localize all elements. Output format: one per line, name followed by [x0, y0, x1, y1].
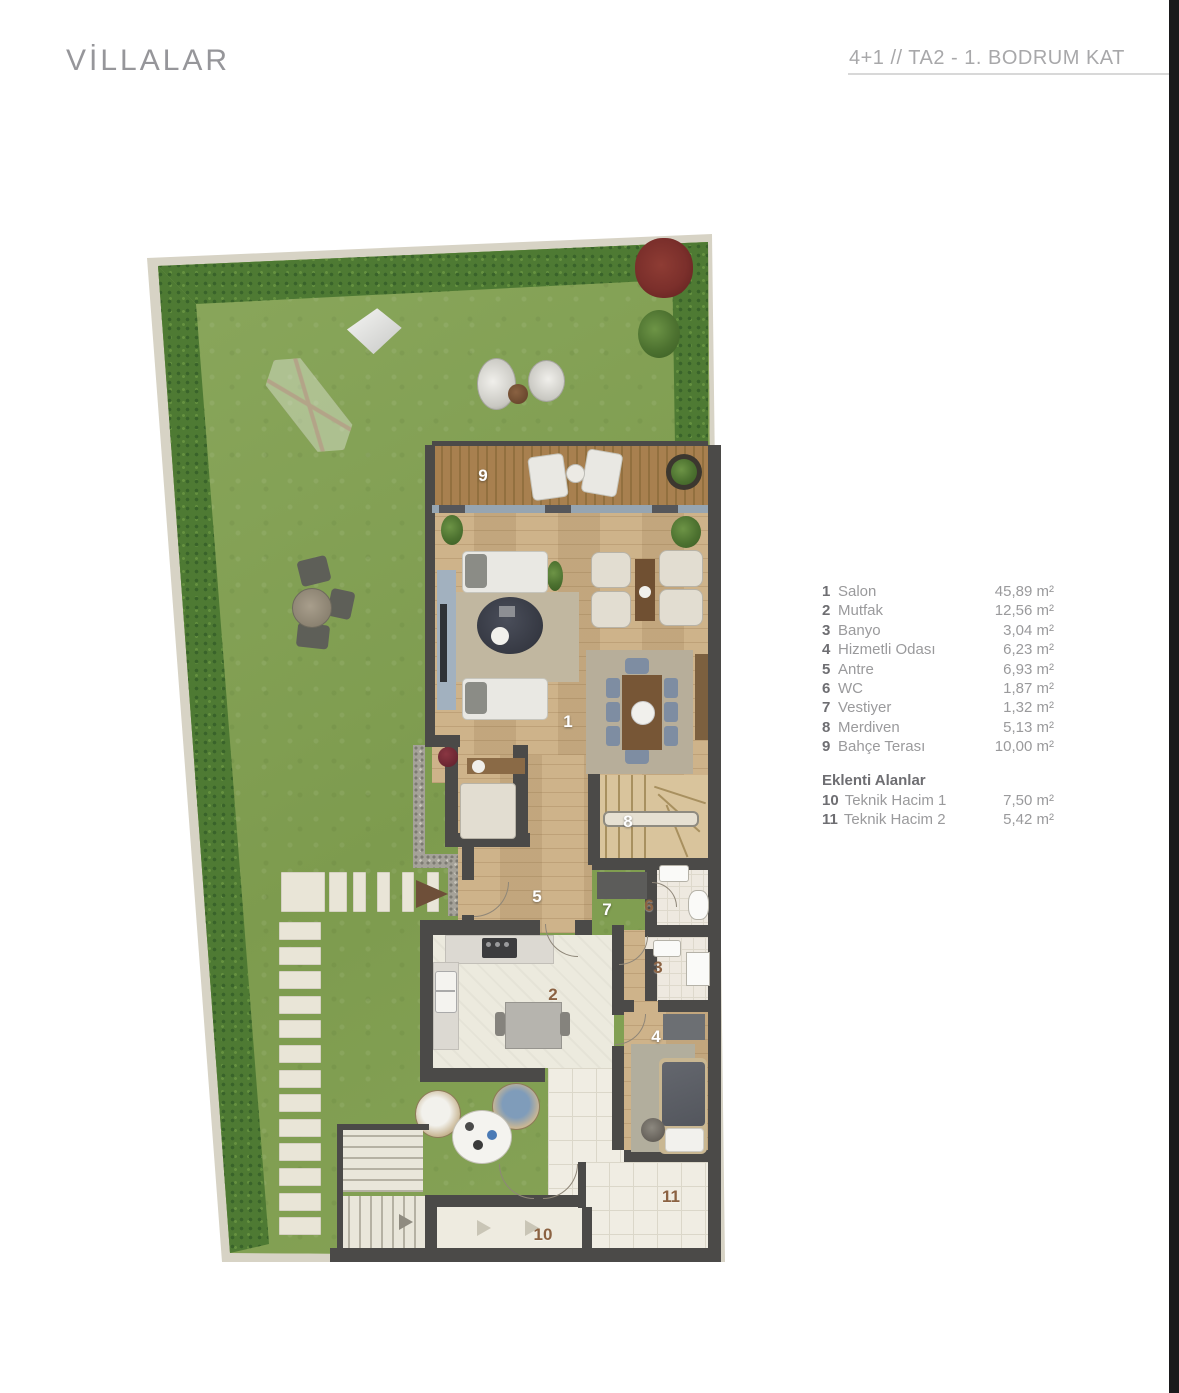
- paver-stone: [279, 1143, 321, 1161]
- legend-room-name: WC: [838, 680, 863, 697]
- garden-coffee-table: [452, 1110, 512, 1164]
- dining-chair: [606, 702, 620, 722]
- tech-room-2-floor: [585, 1162, 708, 1250]
- room-label-wc: 6: [644, 896, 653, 916]
- potted-plant: [671, 516, 701, 548]
- legend-room-area: 7,50 m²: [1003, 792, 1054, 809]
- room-label-teknik-hacim-1: 10: [534, 1225, 553, 1245]
- wall: [645, 925, 708, 937]
- paver-stone: [281, 872, 325, 912]
- paver-stone: [279, 1020, 321, 1038]
- bathroom-shower: [686, 952, 710, 986]
- paver-stone: [279, 922, 321, 940]
- garden-table: [292, 588, 332, 628]
- legend-room-number: 5: [822, 661, 832, 678]
- potted-plant: [547, 561, 563, 591]
- armchair: [659, 550, 703, 587]
- terrace-lounger: [527, 453, 569, 502]
- dresser: [663, 1014, 705, 1040]
- paver-stone: [279, 1045, 321, 1063]
- tech-room-1-floor: [437, 1207, 585, 1250]
- paver-stone: [279, 1168, 321, 1186]
- wc-toilet: [688, 890, 709, 920]
- legend-room-name: Merdiven: [838, 719, 900, 736]
- wall: [462, 847, 474, 880]
- paver-stone: [279, 1193, 321, 1211]
- legend-row: 3Banyo3,04 m²: [822, 622, 1054, 641]
- wall: [420, 920, 540, 935]
- dining-chair: [606, 678, 620, 698]
- paver-stone: [279, 971, 321, 989]
- kitchen-chair: [560, 1012, 570, 1036]
- annex-areas-heading: Eklenti Alanlar: [822, 772, 1054, 789]
- paver-stone: [279, 1119, 321, 1137]
- paver-stone: [279, 1070, 321, 1088]
- dining-chair: [625, 658, 649, 674]
- cocoon-chair: [477, 358, 516, 410]
- exterior-stairs-upper: [343, 1130, 423, 1192]
- door-frame-segment: [545, 505, 571, 513]
- sideboard: [695, 654, 708, 740]
- wall: [658, 1000, 708, 1012]
- room-label-mutfak: 2: [548, 985, 557, 1005]
- wall: [588, 770, 600, 865]
- potted-plant: [441, 515, 463, 545]
- legend-room-number: 10: [822, 792, 839, 809]
- legend-room-name: Teknik Hacim 2: [844, 811, 946, 828]
- sofa-cushion: [465, 554, 487, 588]
- page-title: VİLLALAR: [66, 44, 230, 78]
- paver-stone: [279, 947, 321, 965]
- paver-stone: [279, 996, 321, 1014]
- legend-room-number: 9: [822, 738, 832, 755]
- bedside-stool: [641, 1118, 665, 1142]
- table-cup: [465, 1122, 474, 1131]
- bathroom-sink: [653, 940, 681, 957]
- cooktop-burner: [495, 942, 500, 947]
- header-underline: [848, 73, 1170, 75]
- table-cup: [473, 1140, 483, 1150]
- terrace-side-table: [566, 464, 585, 483]
- cooktop: [482, 938, 517, 958]
- paver-stone: [329, 872, 347, 912]
- stair-handrail: [603, 811, 699, 827]
- room-label-bahce-terasi: 9: [478, 466, 487, 486]
- room-label-merdiven: 8: [623, 812, 632, 832]
- wall: [582, 1207, 592, 1248]
- legend-room-number: 11: [822, 811, 838, 828]
- paver-stone: [353, 872, 366, 912]
- floor-type-header: 4+1 // TA2 - 1. BODRUM KAT: [849, 47, 1169, 70]
- ramp-arrow-icon: [477, 1220, 491, 1236]
- wall: [708, 445, 721, 1262]
- legend-room-area: 1,87 m²: [1003, 680, 1054, 697]
- dining-chair: [625, 748, 649, 764]
- legend-room-number: 7: [822, 699, 832, 716]
- armchair: [591, 552, 631, 588]
- dining-chair: [606, 726, 620, 746]
- room-label-teknik-hacim-2: 11: [662, 1187, 680, 1207]
- legend-room-number: 1: [822, 583, 832, 600]
- legend-room-name: Antre: [838, 661, 874, 678]
- kitchen-table: [505, 1002, 562, 1049]
- dining-chair: [664, 726, 678, 746]
- legend-room-name: Banyo: [838, 622, 881, 639]
- console-plate: [472, 760, 485, 773]
- table-book: [499, 606, 515, 617]
- terrace-lounger: [580, 448, 623, 498]
- legend-row: 6WC1,87 m²: [822, 680, 1054, 699]
- floor-plan: 1 2 3 4 5 6 7 8 9 10 11: [147, 234, 725, 1264]
- legend-room-number: 2: [822, 602, 832, 619]
- legend-row: 2Mutfak12,56 m²: [822, 602, 1054, 621]
- legend-room-area: 12,56 m²: [995, 602, 1054, 619]
- legend-room-area: 10,00 m²: [995, 738, 1054, 755]
- cooktop-burner: [486, 942, 491, 947]
- kitchen-sink-divider: [435, 990, 455, 992]
- legend-row: 7Vestiyer1,32 m²: [822, 699, 1054, 718]
- decor-vase: [438, 747, 458, 767]
- table-cup: [487, 1130, 497, 1140]
- legend-row: 8Merdiven5,13 m²: [822, 719, 1054, 738]
- tv-screen: [440, 604, 447, 682]
- cooktop-burner: [504, 942, 509, 947]
- room-label-hizmetli-odasi: 4: [651, 1027, 660, 1047]
- entrance-arrow-icon: [416, 880, 448, 908]
- kitchen-sink: [435, 971, 457, 1013]
- legend-row: 11Teknik Hacim 25,42 m²: [822, 811, 1054, 830]
- wall: [420, 920, 433, 1082]
- legend-room-area: 5,13 m²: [1003, 719, 1054, 736]
- planter-plant: [671, 459, 697, 485]
- room-label-vestiyer: 7: [602, 900, 611, 920]
- kitchen-chair: [495, 1012, 505, 1036]
- legend-room-area: 5,42 m²: [1003, 811, 1054, 828]
- gravel-border: [413, 745, 425, 867]
- reading-chair: [460, 783, 516, 839]
- paver-stone: [402, 872, 414, 912]
- legend-room-area: 6,23 m²: [1003, 641, 1054, 658]
- legend-row: 10Teknik Hacim 17,50 m²: [822, 792, 1054, 811]
- wall: [337, 1124, 429, 1130]
- paver-stone: [377, 872, 390, 912]
- armchair: [659, 589, 703, 626]
- door-frame-segment: [652, 505, 678, 513]
- legend-room-area: 1,32 m²: [1003, 699, 1054, 716]
- room-label-banyo: 3: [653, 958, 662, 978]
- wardrobe-closet: [597, 872, 647, 899]
- legend-room-name: Teknik Hacim 1: [845, 792, 947, 809]
- legend-room-name: Salon: [838, 583, 876, 600]
- legend-room-number: 8: [822, 719, 832, 736]
- stairs-direction-arrow-icon: [399, 1214, 413, 1230]
- legend-row: 5Antre6,93 m²: [822, 661, 1054, 680]
- legend-row: 4Hizmetli Odası6,23 m²: [822, 641, 1054, 660]
- legend-room-number: 6: [822, 680, 832, 697]
- right-edge-bar: [1169, 0, 1179, 1393]
- room-label-antre: 5: [532, 887, 541, 907]
- wall: [330, 1248, 708, 1262]
- bed-duvet: [662, 1062, 705, 1126]
- red-bush: [635, 238, 693, 298]
- door-frame-segment: [439, 505, 465, 513]
- legend-room-area: 6,93 m²: [1003, 661, 1054, 678]
- legend-row: 1Salon45,89 m²: [822, 583, 1054, 602]
- armchair: [591, 591, 631, 628]
- dining-centerpiece: [631, 701, 655, 725]
- wall: [624, 1000, 634, 1012]
- legend-room-number: 4: [822, 641, 832, 658]
- wall: [425, 1195, 585, 1207]
- sofa-cushion: [465, 682, 487, 714]
- wall: [612, 1046, 624, 1150]
- paver-stone: [279, 1217, 321, 1235]
- legend-room-name: Mutfak: [838, 602, 883, 619]
- side-table-plate: [639, 586, 651, 598]
- legend-room-area: 3,04 m²: [1003, 622, 1054, 639]
- bed-pillow: [665, 1128, 704, 1152]
- exterior-stairs-lower: [337, 1196, 429, 1248]
- legend-room-name: Bahçe Terası: [838, 738, 925, 755]
- paver-stone: [279, 1094, 321, 1112]
- legend-room-name: Vestiyer: [838, 699, 891, 716]
- legend-row: 9Bahçe Terası10,00 m²: [822, 738, 1054, 757]
- table-tray: [491, 627, 509, 645]
- wc-sink: [659, 865, 689, 882]
- wall: [420, 1068, 545, 1082]
- dining-chair: [664, 702, 678, 722]
- garden-side-table: [508, 384, 528, 404]
- room-legend: 1Salon45,89 m² 2Mutfak12,56 m² 3Banyo3,0…: [822, 583, 1054, 830]
- legend-room-area: 45,89 m²: [995, 583, 1054, 600]
- green-bush: [638, 310, 680, 358]
- dining-chair: [664, 678, 678, 698]
- wall: [337, 1124, 343, 1254]
- legend-room-number: 3: [822, 622, 832, 639]
- wall: [432, 441, 708, 446]
- wall: [425, 445, 435, 745]
- room-label-salon: 1: [563, 712, 572, 732]
- legend-room-name: Hizmetli Odası: [838, 641, 936, 658]
- cocoon-chair: [528, 360, 565, 402]
